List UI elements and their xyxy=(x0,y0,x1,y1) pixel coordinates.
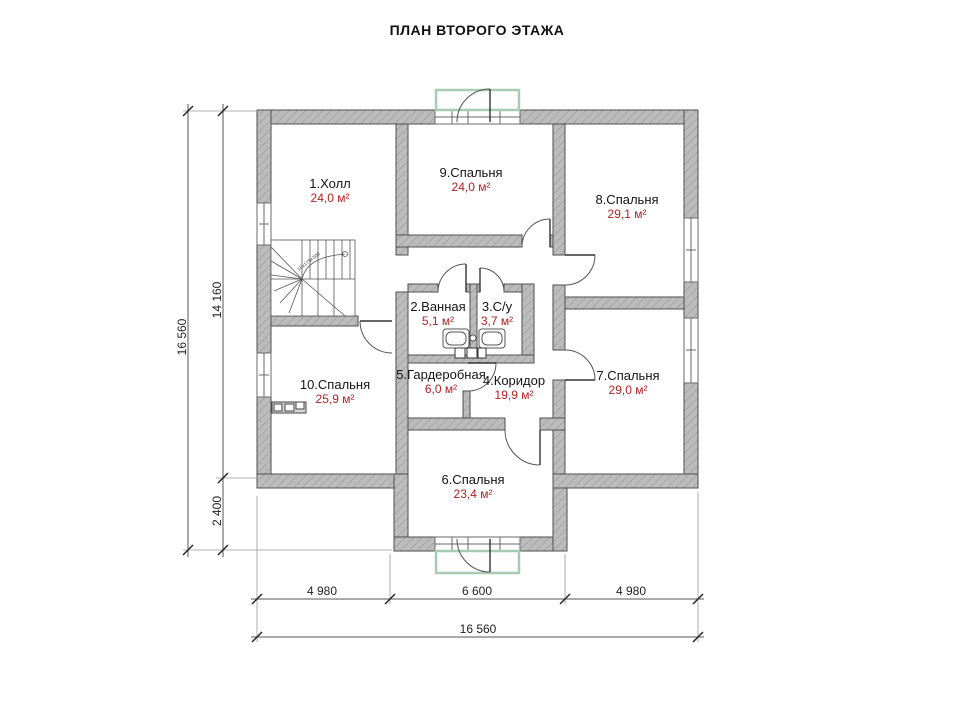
room-area: 24,0 м² xyxy=(439,181,502,194)
room-name: 3.С/у xyxy=(481,300,513,314)
room-label-bedroom6: 6.Спальня 23,4 м² xyxy=(441,473,504,501)
drain-icon xyxy=(470,335,476,341)
dimension-bottom-right: 4 980 xyxy=(616,584,646,598)
door-bathroom xyxy=(438,264,466,292)
door-bedroom10 xyxy=(360,321,392,353)
room-label-corridor: 4.Коридор 19,9 м² xyxy=(483,374,545,402)
balcony-top xyxy=(436,90,519,110)
room-label-wardrobe: 5.Гардеробная 6,0 м² xyxy=(396,368,485,396)
bathtub-icon xyxy=(443,329,469,348)
floor-plan-drawing xyxy=(0,0,956,717)
room-label-bedroom7: 7.Спальня 29,0 м² xyxy=(596,369,659,397)
room-name: 9.Спальня xyxy=(439,166,502,180)
window-hall xyxy=(257,203,271,245)
room-name: 1.Холл xyxy=(309,177,350,191)
window-bedroom10 xyxy=(257,353,271,397)
room-area: 6,0 м² xyxy=(396,383,485,396)
room-area: 25,9 м² xyxy=(300,393,370,406)
room-area: 19,9 м² xyxy=(483,389,545,402)
door-bedroom8 xyxy=(565,255,595,285)
dimension-bottom-center: 6 600 xyxy=(462,584,492,598)
dimension-bottom-total: 16 560 xyxy=(460,622,497,636)
room-name: 4.Коридор xyxy=(483,374,545,388)
room-name: 2.Ванная xyxy=(410,300,465,314)
door-bedroom9 xyxy=(522,219,550,247)
room-area: 24,0 м² xyxy=(309,192,350,205)
room-label-wc: 3.С/у 3,7 м² xyxy=(481,300,513,328)
door-wc xyxy=(480,268,504,292)
room-label-bedroom9: 9.Спальня 24,0 м² xyxy=(439,166,502,194)
room-name: 5.Гардеробная xyxy=(396,368,485,382)
room-area: 29,1 м² xyxy=(595,208,658,221)
dimension-left-main: 14 160 xyxy=(210,282,224,319)
room-name: 8.Спальня xyxy=(595,193,658,207)
room-area: 5,1 м² xyxy=(410,315,465,328)
floor-plan-page: ПЛАН ВТОРОГО ЭТАЖА xyxy=(0,0,956,717)
window-bedroom7 xyxy=(684,318,698,383)
dimension-left-total: 16 560 xyxy=(175,319,189,356)
room-label-bathroom: 2.Ванная 5,1 м² xyxy=(410,300,465,328)
room-area: 29,0 м² xyxy=(596,384,659,397)
door-bedroom7 xyxy=(565,350,595,380)
balcony-door-frame-bottom xyxy=(435,537,520,551)
room-name: 7.Спальня xyxy=(596,369,659,383)
radiator-icon xyxy=(455,348,486,358)
room-name: 6.Спальня xyxy=(441,473,504,487)
room-label-bedroom8: 8.Спальня 29,1 м² xyxy=(595,193,658,221)
room-area: 23,4 м² xyxy=(441,488,504,501)
dimension-left-lower: 2 400 xyxy=(210,496,224,526)
staircase xyxy=(271,240,355,316)
balcony-door-frame-top xyxy=(435,110,520,124)
door-bedroom6 xyxy=(505,430,540,465)
room-label-bedroom10: 10.Спальня 25,9 м² xyxy=(300,378,370,406)
dimension-bottom-left: 4 980 xyxy=(307,584,337,598)
room-area: 3,7 м² xyxy=(481,315,513,328)
room-label-hall: 1.Холл 24,0 м² xyxy=(309,177,350,205)
room-name: 10.Спальня xyxy=(300,378,370,392)
sink-icon xyxy=(479,329,505,348)
window-bedroom8 xyxy=(684,218,698,282)
